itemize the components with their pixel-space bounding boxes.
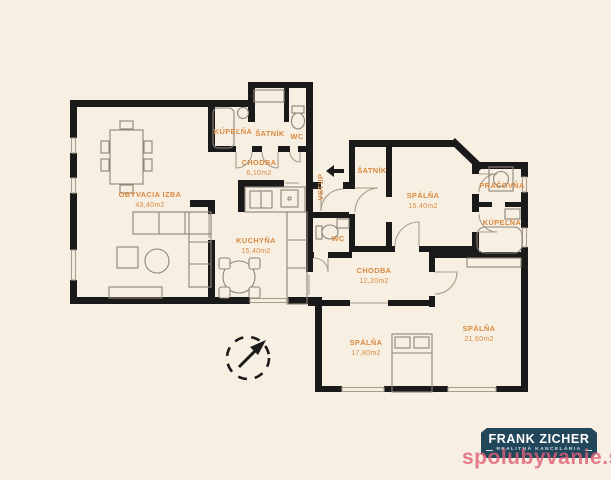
toilet-top [292, 106, 304, 113]
room-label-spalna-3: SPÁLŇA [463, 324, 496, 333]
room-label-kuchyna: KUCHYŇA [236, 236, 276, 245]
entrance-label: VSTUP [316, 174, 325, 201]
room-area-spalna-2: 17,80m2 [351, 350, 380, 357]
sink-top [238, 108, 249, 119]
diagonal-wall [455, 143, 479, 166]
sofa [133, 212, 211, 234]
room-label-obyvacia-izba: OBÝVACIA IZBA [119, 190, 182, 199]
bed [392, 334, 432, 392]
room-label-pracovna: PRÁČOVŇA [479, 181, 525, 190]
room-area-kuchyna: 15,40m2 [241, 248, 270, 255]
room-label-spalna-1: SPÁLŇA [407, 191, 440, 200]
room-label-kupelna-top: KÚPEĽŇA [214, 127, 253, 136]
room-area-spalna-1: 15,40m2 [408, 203, 437, 210]
room-area-chodba-big: 12,20m2 [359, 278, 388, 285]
entrance-arrow-icon [326, 165, 344, 177]
room-label-satnik-right: ŠATNÍK [357, 166, 387, 175]
wardrobe-bedroom21 [467, 258, 521, 267]
room-area-spalna-3: 21,60m2 [464, 336, 493, 343]
floor-plan-drawing: OBÝVACIA IZBA 43,40m2 KÚPEĽŇA ŠATNÍK WC … [0, 0, 611, 480]
room-label-spalna-2: SPÁLŇA [350, 338, 383, 347]
agency-logo-title: FRANK ZICHER [489, 433, 590, 446]
room-label-wc-middle: WC [331, 234, 344, 243]
bathtub-right [477, 227, 522, 253]
room-label-chodba-small: CHODBA [242, 158, 277, 167]
room-label-satnik-top: ŠATNÍK [255, 129, 285, 138]
room-label-kupelna-right: KÚPEĽŇA [483, 218, 522, 227]
toilet-middle [316, 226, 322, 239]
room-area-chodba-small: 6,10m2 [246, 170, 271, 177]
dining-table [110, 130, 143, 184]
windows [72, 138, 527, 392]
room-label-chodba-big: CHODBA [357, 266, 392, 275]
wardrobe-top [254, 90, 284, 102]
compass-icon [227, 337, 269, 379]
watermark-text: spolubyvanie.sk [462, 446, 611, 470]
room-label-wc-top: WC [290, 132, 303, 141]
round-table [145, 249, 169, 273]
armchair [117, 247, 138, 268]
room-area-obyvacia-izba: 43,40m2 [135, 202, 164, 209]
floor-plan-page: OBÝVACIA IZBA 43,40m2 KÚPEĽŇA ŠATNÍK WC … [0, 0, 611, 480]
tv-bench [109, 287, 162, 298]
